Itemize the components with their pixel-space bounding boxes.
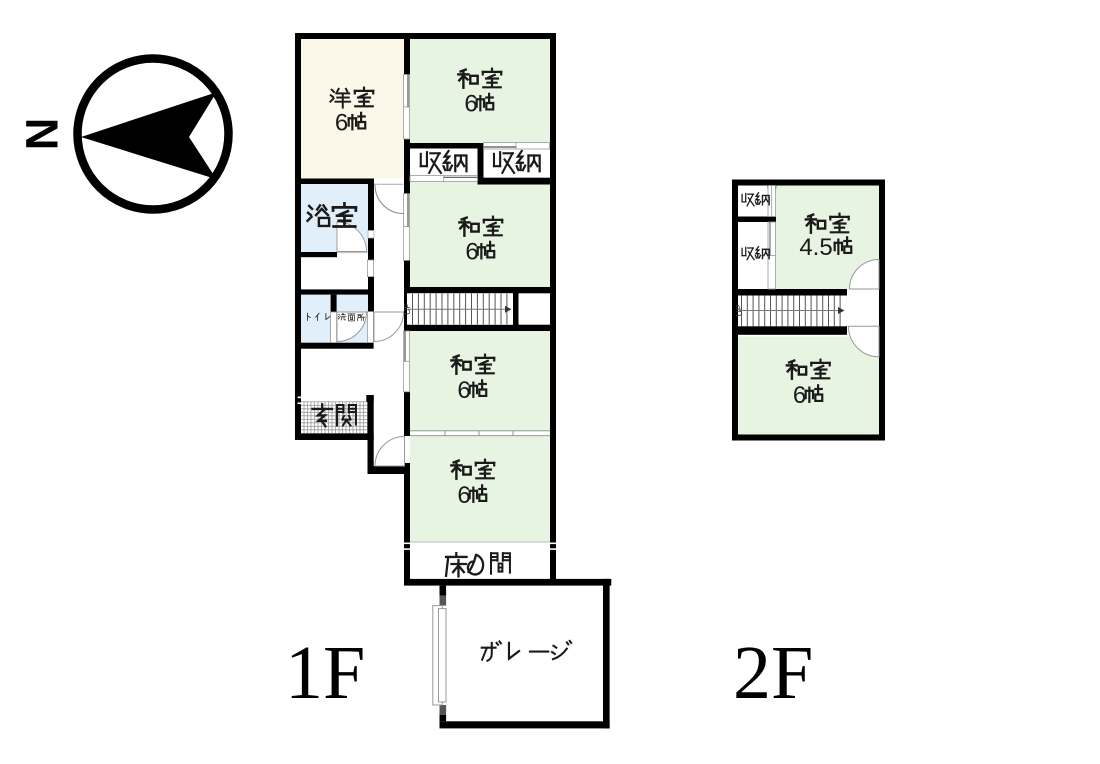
- svg-text:UP: UP: [402, 303, 412, 315]
- svg-text:1F: 1F: [285, 631, 365, 715]
- svg-text:6: 6: [793, 382, 806, 409]
- svg-text:4.5: 4.5: [799, 234, 832, 261]
- svg-text:6: 6: [335, 110, 348, 137]
- svg-text:2F: 2F: [733, 631, 813, 715]
- svg-text:N: N: [17, 118, 68, 151]
- svg-text:UP: UP: [734, 304, 744, 316]
